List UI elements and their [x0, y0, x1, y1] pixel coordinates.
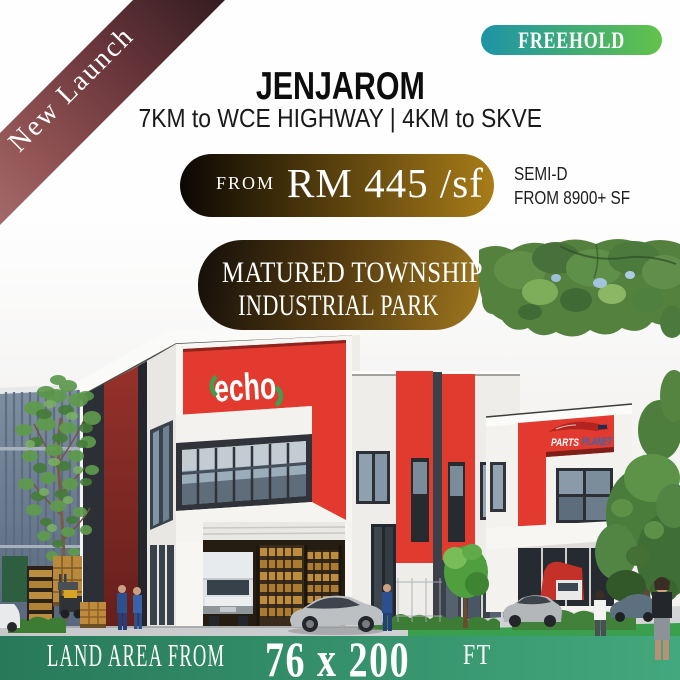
svg-text:echo: echo — [213, 365, 277, 410]
svg-text:PLANET: PLANET — [582, 436, 613, 448]
svg-text:PARTS: PARTS — [551, 437, 580, 449]
